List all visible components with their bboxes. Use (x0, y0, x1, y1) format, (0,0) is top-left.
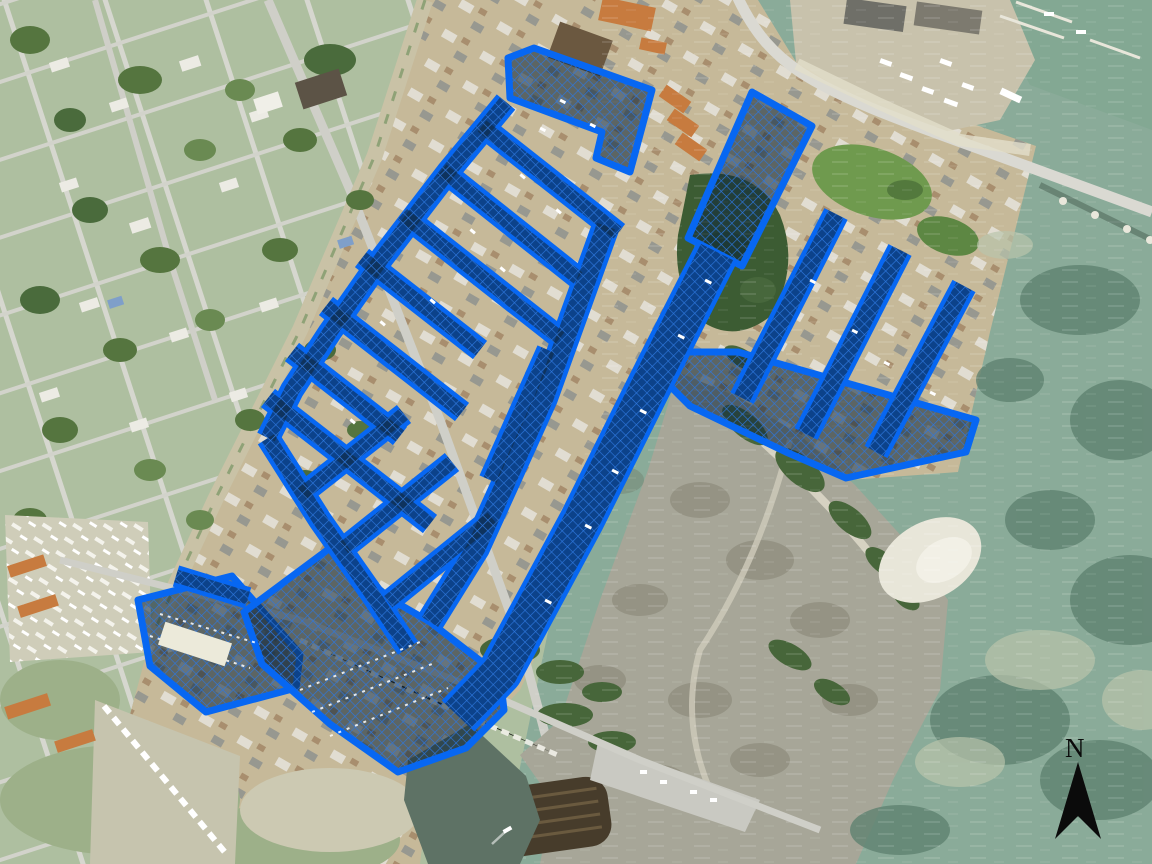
map-canvas: N (0, 0, 1152, 864)
sand-area (240, 768, 420, 852)
north-arrow-label: N (1065, 733, 1085, 763)
aerial-map: N (0, 0, 1152, 864)
